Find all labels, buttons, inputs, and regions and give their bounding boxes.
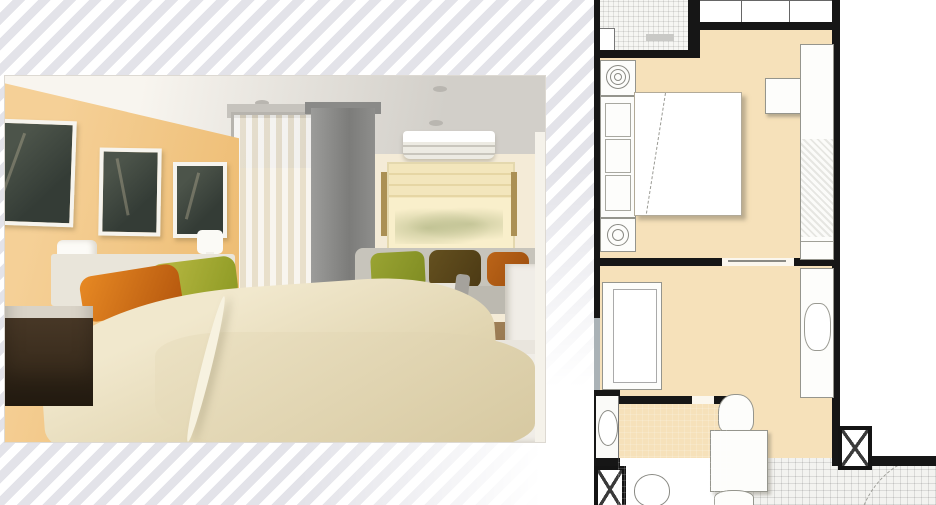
closet-hanging-area xyxy=(801,139,833,237)
curtain-rod xyxy=(381,172,387,236)
air-conditioner xyxy=(403,131,495,159)
ceiling-light xyxy=(433,86,447,92)
framed-picture xyxy=(98,147,162,236)
closet-divider xyxy=(801,241,833,242)
wardrobe-shelf xyxy=(605,139,631,173)
top-bathroom-tiles xyxy=(598,0,691,53)
tiny-label xyxy=(646,34,674,41)
wall-segment xyxy=(594,50,690,58)
sliding-door-opening xyxy=(722,258,794,266)
closet-divider xyxy=(789,1,790,23)
wall-corner xyxy=(535,132,545,442)
sink-counter xyxy=(596,396,619,458)
window-foliage xyxy=(395,204,503,244)
sofa-seat xyxy=(613,289,657,383)
roman-shade xyxy=(389,164,513,198)
closet-divider xyxy=(741,1,742,23)
ceiling-light xyxy=(429,120,443,126)
toilet xyxy=(634,474,670,505)
framed-picture xyxy=(173,162,227,238)
double-bed xyxy=(634,92,742,216)
window xyxy=(387,162,515,254)
framed-picture xyxy=(5,119,77,228)
washing-machine xyxy=(600,60,636,96)
bathroom-door-opening xyxy=(692,396,714,404)
window-in-wall xyxy=(594,318,600,392)
tv-cabinet xyxy=(765,78,801,114)
apartment-floorplan xyxy=(594,0,936,505)
side-unit xyxy=(600,218,636,252)
sofa xyxy=(602,282,662,390)
sliding-door-leaf xyxy=(728,260,786,262)
bedroom-render-photo xyxy=(5,76,545,442)
nightstand xyxy=(5,306,93,406)
listing-graphic xyxy=(0,0,936,505)
bedside-lamp xyxy=(197,230,223,254)
desk xyxy=(800,268,834,398)
built-in-closet xyxy=(698,0,834,24)
wardrobe-shelf xyxy=(605,175,631,211)
curtain-rod xyxy=(511,172,517,236)
stripe-fade-overlay xyxy=(544,170,594,505)
desk-chair xyxy=(804,303,831,351)
balcony-door-window xyxy=(231,112,317,310)
wall-segment xyxy=(698,22,840,30)
wardrobe-shelf xyxy=(605,103,631,137)
wall-segment xyxy=(594,258,722,266)
wardrobe xyxy=(600,96,636,218)
column-x xyxy=(838,426,872,470)
wall-segment xyxy=(618,396,692,404)
closet-right xyxy=(800,44,834,260)
bed-fold-line xyxy=(646,93,666,214)
wall-segment xyxy=(594,458,620,466)
